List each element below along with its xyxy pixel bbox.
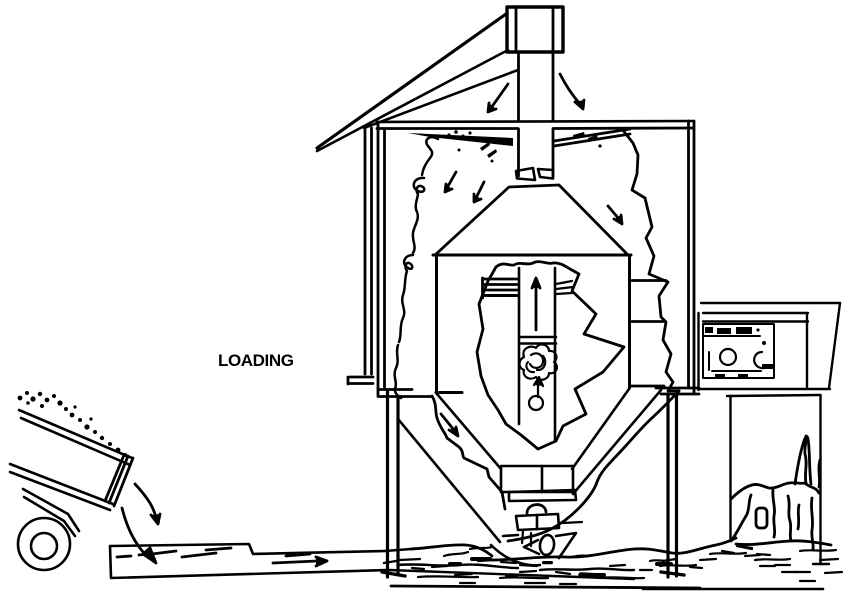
svg-text:LOADING: LOADING [218,351,294,370]
